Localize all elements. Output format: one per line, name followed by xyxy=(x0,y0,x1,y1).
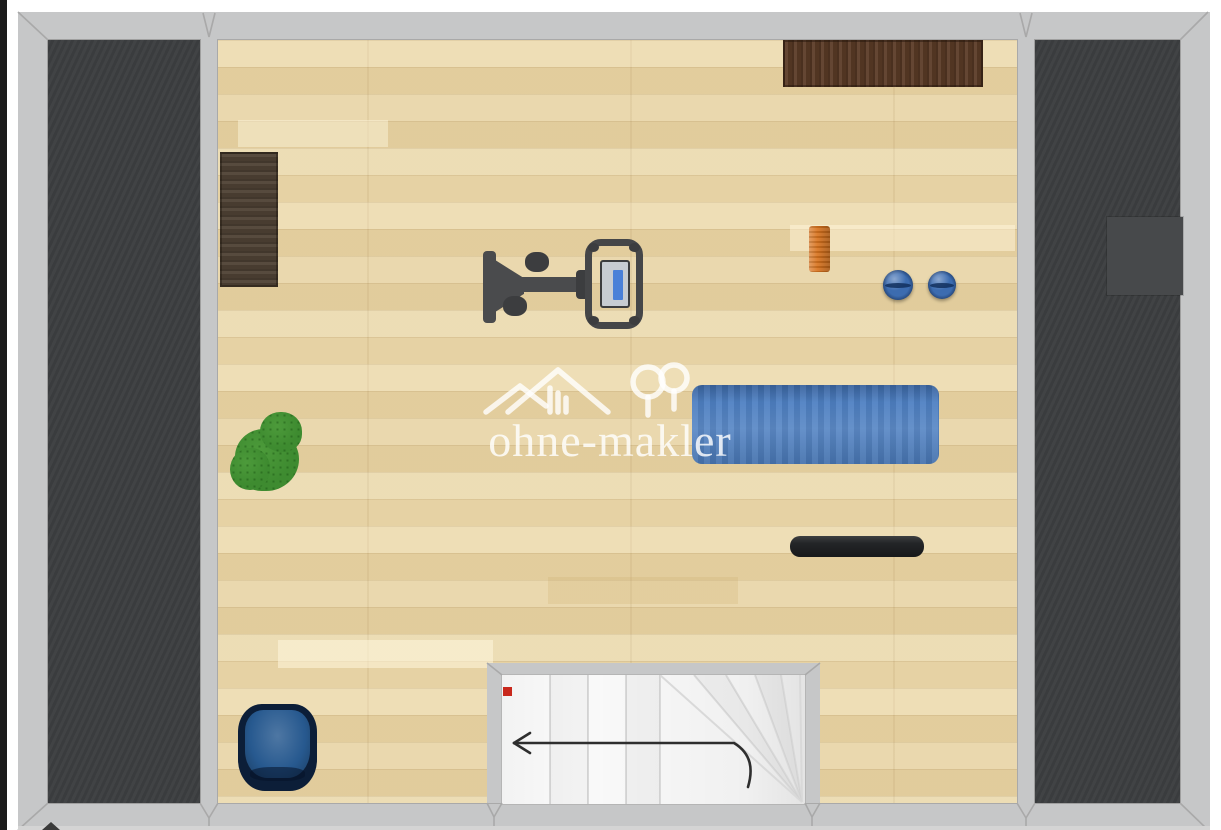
trainer-handle-grip xyxy=(629,243,640,252)
plant xyxy=(230,412,308,496)
floor-plank-patch xyxy=(548,577,738,604)
foam-roller xyxy=(809,226,830,272)
outer-wall-top xyxy=(18,12,1210,40)
plant-foliage xyxy=(230,448,270,490)
trainer-handle-grip xyxy=(588,316,599,325)
stair-enclosure-wall-left xyxy=(487,663,502,803)
stair-shading xyxy=(550,675,802,804)
desk xyxy=(220,152,278,287)
ball-stripe xyxy=(885,283,911,288)
medicine-ball-right xyxy=(928,271,956,299)
trainer-console-screen xyxy=(613,270,623,300)
trainer-pedal-bottom xyxy=(503,296,527,316)
floor-plank-patch xyxy=(278,640,493,668)
divider-wall-left xyxy=(200,40,218,803)
stair-start-marker xyxy=(503,687,512,696)
outer-wall-right xyxy=(1180,12,1210,830)
trainer-console xyxy=(600,260,630,308)
trainer-pedal-top xyxy=(525,252,549,272)
stair-enclosure-wall-right xyxy=(805,663,820,803)
armchair xyxy=(238,704,317,791)
weight-bar xyxy=(790,536,924,557)
stair-treads-and-arrow xyxy=(502,675,805,804)
staircase xyxy=(502,675,805,804)
page-edge-strip xyxy=(0,0,7,830)
trainer-center-beam xyxy=(508,277,584,292)
trainer-handle-grip xyxy=(588,243,599,252)
skylight xyxy=(1107,217,1183,295)
ball-stripe xyxy=(930,283,955,288)
bottom-wall-highlight xyxy=(18,826,1210,830)
medicine-ball-left xyxy=(883,270,913,300)
sideboard xyxy=(783,40,983,87)
yoga-mat xyxy=(692,385,939,464)
floor-plank-patch xyxy=(238,120,388,147)
floor-plan-canvas: ohne-makler xyxy=(0,0,1221,830)
plant-foliage xyxy=(260,412,302,452)
armchair-backrest xyxy=(250,767,305,781)
side-attic-area-left xyxy=(48,40,200,803)
stair-enclosure-wall-top xyxy=(487,663,820,675)
outer-wall-left xyxy=(18,12,48,830)
side-attic-area-right xyxy=(1035,40,1180,803)
trainer-handle-grip xyxy=(629,316,640,325)
divider-wall-right xyxy=(1017,40,1035,803)
